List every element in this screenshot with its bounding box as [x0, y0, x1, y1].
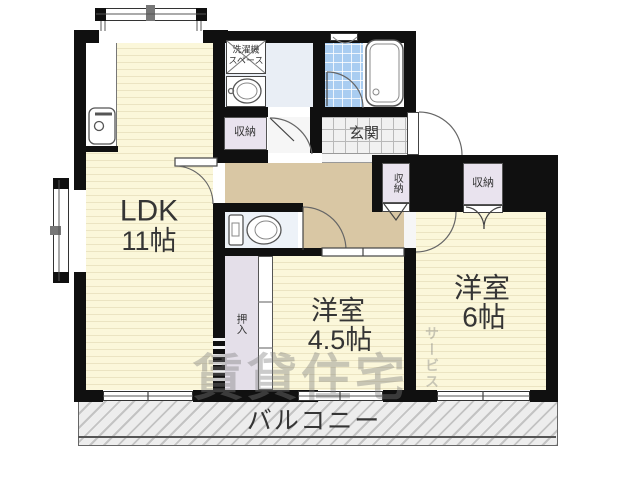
wall-washroom-bottom	[213, 150, 268, 163]
wall-hatched-segment	[213, 333, 225, 381]
kitchen-counter-stub	[86, 146, 118, 152]
label-laundry1: 洗濯機	[232, 45, 259, 54]
label-ldk-size: 11帖	[121, 227, 176, 255]
front-door-leaf	[407, 112, 419, 155]
west6-doorway	[404, 212, 416, 250]
wall-bath-west	[313, 31, 325, 107]
label-oshiire: 押入	[235, 314, 246, 335]
wall-bottom-d	[530, 390, 558, 402]
hallway-floor	[225, 163, 372, 203]
label-storage-washroom: 収納	[234, 127, 256, 139]
label-genkan: 玄関	[349, 126, 379, 142]
label-balcony: バルコニー	[247, 408, 382, 434]
wall-right	[546, 155, 558, 402]
label-ldk: LDK	[120, 195, 178, 227]
label-west6-size: 6帖	[462, 302, 506, 331]
wall-west45-north	[258, 248, 322, 256]
washbasin-box	[226, 76, 266, 107]
bay-window-top-mullion	[146, 5, 155, 21]
window-west45-south	[298, 391, 383, 401]
bay-window-top-cap-left	[95, 8, 106, 21]
wall-washroom-mid	[213, 107, 268, 117]
bay-window-left-cap-top	[53, 178, 69, 189]
label-west45: 洋室	[311, 297, 365, 325]
storage-west6-door-strip	[463, 205, 503, 213]
bath-tile-floor	[325, 36, 363, 107]
bathtub-room-floor	[363, 36, 404, 107]
window-west6-south	[437, 391, 530, 401]
wall-bath-bottom	[313, 107, 416, 117]
wall-west45-west6-divider	[404, 248, 416, 390]
front-door-arc	[419, 112, 462, 155]
bay-window-top-cap-right	[196, 8, 207, 21]
bay-window-left-mullion	[50, 226, 61, 235]
toilet-room-floor	[225, 212, 298, 248]
floor-plan: LDK 11帖 洋室 4.5帖 洋室 6帖 バルコニー 玄関 洗濯機 スペース …	[0, 0, 640, 480]
wall-toilet-top	[225, 203, 303, 212]
wall-rightwing-top2	[372, 203, 382, 212]
window-bath-north	[330, 33, 358, 41]
bay-window-left-cap-bottom	[53, 272, 69, 283]
kitchen-counter	[86, 43, 117, 147]
bay-window-top-opening	[99, 30, 203, 43]
washroom-door-zone	[268, 117, 310, 153]
wall-bath-right	[404, 31, 416, 112]
west45-sliding-door	[322, 248, 404, 256]
window-ldk-south	[103, 391, 193, 401]
storage-hall-door-strip	[382, 203, 410, 212]
label-west6: 洋室	[454, 273, 510, 302]
bay-window-left-opening	[74, 190, 86, 272]
label-storage-hall: 収納	[391, 173, 402, 193]
oshiire-sliding-track	[258, 256, 273, 390]
wall-bottom-a	[74, 390, 103, 402]
label-storage-west6: 収納	[472, 178, 494, 190]
wall-bottom-c	[383, 390, 437, 402]
label-west45-size: 4.5帖	[308, 326, 373, 354]
label-laundry2: スペース	[229, 56, 264, 65]
